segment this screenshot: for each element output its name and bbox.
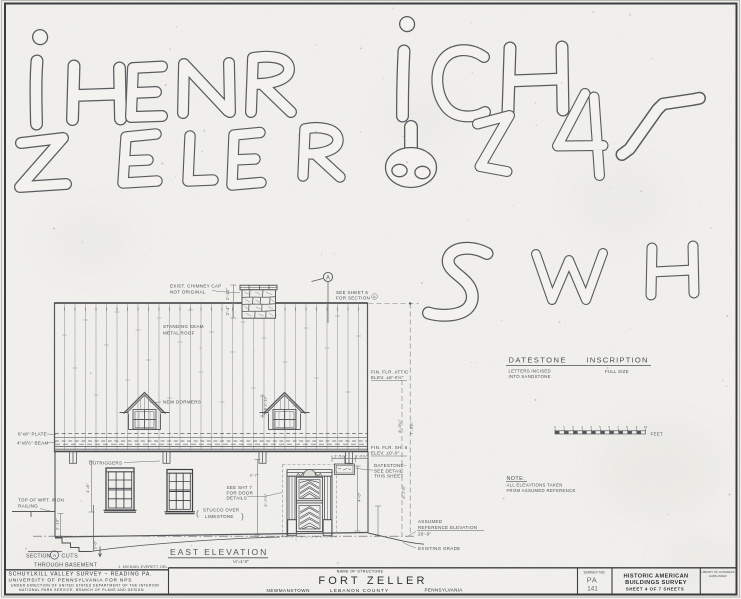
svg-text:STUCCO OVER: STUCCO OVER xyxy=(203,508,240,513)
svg-text:2'-5¼": 2'-5¼" xyxy=(334,455,347,459)
svg-text:8'-0¼": 8'-0¼" xyxy=(397,419,402,432)
svg-text:NAME OF STRUCTURE: NAME OF STRUCTURE xyxy=(337,569,384,573)
svg-text:BUILDINGS SURVEY: BUILDINGS SURVEY xyxy=(625,580,687,586)
svg-text:PENNSYLVANIA: PENNSYLVANIA xyxy=(425,588,464,593)
svg-text:J. MICHAEL EVERETT, DEL.: J. MICHAEL EVERETT, DEL. xyxy=(119,565,169,569)
svg-text:DATESTONE: DATESTONE xyxy=(509,356,567,365)
svg-text:0'-7": 0'-7" xyxy=(250,474,259,478)
svg-text:6'-7¾": 6'-7¾" xyxy=(263,493,268,506)
svg-text:REFERENCE ELEVATION: REFERENCE ELEVATION xyxy=(418,525,477,530)
svg-text:4"x6½" BEAM: 4"x6½" BEAM xyxy=(17,440,49,446)
svg-text:NEW DORMERS: NEW DORMERS xyxy=(163,400,201,405)
svg-text:CUTS: CUTS xyxy=(62,554,79,560)
svg-text:STANDING SEAM: STANDING SEAM xyxy=(163,324,204,329)
svg-text:TOP OF WRT. IRON: TOP OF WRT. IRON xyxy=(18,498,64,503)
svg-text:1'-10": 1'-10" xyxy=(225,288,230,300)
svg-text:FROM ASSUMED REFERENCE: FROM ASSUMED REFERENCE xyxy=(507,488,576,493)
svg-text:FORT ZELLER: FORT ZELLER xyxy=(318,575,427,587)
svg-text:HABS ANNEX: HABS ANNEX xyxy=(709,574,727,578)
svg-text:141: 141 xyxy=(587,586,598,593)
svg-text:7'-9⅝": 7'-9⅝" xyxy=(409,421,414,434)
svg-text:UNDER DIRECTION OF UNITED STAT: UNDER DIRECTION OF UNITED STATES DEPARTM… xyxy=(11,583,159,587)
svg-text:NEWMANSTOWN: NEWMANSTOWN xyxy=(267,588,310,593)
svg-text:¼"=1'-0": ¼"=1'-0" xyxy=(233,559,249,564)
svg-text:RAILING: RAILING xyxy=(18,504,38,509)
svg-text:SURVEY NO.: SURVEY NO. xyxy=(583,570,605,574)
svg-text:6"x8" PLATE: 6"x8" PLATE xyxy=(18,432,47,437)
svg-text:EAST ELEVATION: EAST ELEVATION xyxy=(170,547,268,557)
svg-text:LETTERS INCISED: LETTERS INCISED xyxy=(509,369,551,374)
svg-text:1'-0¾": 1'-0¾" xyxy=(355,455,368,459)
svg-text:ALL ELEVATIONS TAKEN: ALL ELEVATIONS TAKEN xyxy=(507,482,563,487)
svg-text:THIS SHEET: THIS SHEET xyxy=(374,474,404,479)
svg-text:FIN. FLR. SH. 6: FIN. FLR. SH. 6 xyxy=(371,445,408,450)
svg-text:LEBANON COUNTY: LEBANON COUNTY xyxy=(330,588,389,594)
svg-text:PA: PA xyxy=(587,576,598,585)
svg-text:DATESTONE–: DATESTONE– xyxy=(374,463,407,468)
svg-text:ASSUMED: ASSUMED xyxy=(418,519,443,524)
svg-text:NATIONAL PARK SERVICE, BRANCH: NATIONAL PARK SERVICE, BRANCH OF PLANS A… xyxy=(19,588,144,592)
svg-text:SECTION: SECTION xyxy=(26,554,51,560)
svg-text:DETAILS: DETAILS xyxy=(227,496,248,501)
svg-text:FULL SIZE: FULL SIZE xyxy=(605,369,629,374)
svg-text:NOTE:: NOTE: xyxy=(507,476,525,482)
svg-text:): ) xyxy=(241,511,244,521)
svg-text:6'-7¾": 6'-7¾" xyxy=(401,485,406,498)
svg-text:SEE DETAIL: SEE DETAIL xyxy=(374,468,403,473)
svg-text:10: 10 xyxy=(644,425,648,429)
svg-text:SCHUYLKILL VALLEY SURVEY ~: SCHUYLKILL VALLEY SURVEY ~ READING PA. xyxy=(9,572,153,578)
svg-text:SHEET 4 OF 7 SHEETS: SHEET 4 OF 7 SHEETS xyxy=(626,587,685,592)
svg-text:2'-4": 2'-4" xyxy=(225,305,230,315)
svg-text:4'-0": 4'-0" xyxy=(357,492,362,502)
svg-text:SEE SHT 7: SEE SHT 7 xyxy=(227,485,253,490)
svg-text:ELEV. ±0'-0": ELEV. ±0'-0" xyxy=(371,451,400,456)
svg-text:NOT ORIGINAL: NOT ORIGINAL xyxy=(170,290,206,295)
svg-text:ELEV. ±8'-0⅛": ELEV. ±8'-0⅛" xyxy=(371,375,404,380)
svg-text:5'-8 3'-10: 5'-8 3'-10 xyxy=(264,397,268,415)
svg-text:3'-0": 3'-0" xyxy=(94,540,98,549)
svg-text:FEET: FEET xyxy=(651,432,664,437)
svg-text:A: A xyxy=(373,295,376,299)
svg-text:FIN. FLR. ATTIC: FIN. FLR. ATTIC xyxy=(371,370,409,375)
svg-text:INSCRIPTION: INSCRIPTION xyxy=(587,356,649,365)
svg-text:2'-10": 2'-10" xyxy=(54,518,59,530)
svg-text:(: ( xyxy=(196,508,199,518)
svg-text:4'-8": 4'-8" xyxy=(85,483,90,493)
svg-text:FOR DOOR: FOR DOOR xyxy=(227,490,254,495)
svg-text:FOR SECTION: FOR SECTION xyxy=(336,296,370,301)
svg-text:THROUGH BASEMENT: THROUGH BASEMENT xyxy=(34,563,98,569)
svg-text:METAL ROOF: METAL ROOF xyxy=(163,331,195,336)
svg-text:INTO SANDSTONE: INTO SANDSTONE xyxy=(509,374,551,379)
svg-text:HISTORIC AMERICAN: HISTORIC AMERICAN xyxy=(623,574,688,580)
svg-text:EXIST. CHIMNEY CAP: EXIST. CHIMNEY CAP xyxy=(170,284,222,289)
svg-text:SEE SHEET 6: SEE SHEET 6 xyxy=(336,290,368,295)
svg-text:EXISTING GRADE: EXISTING GRADE xyxy=(418,546,460,551)
svg-text:LIMESTONE: LIMESTONE xyxy=(205,514,234,519)
svg-text:20'-0": 20'-0" xyxy=(418,532,431,537)
svg-text:A: A xyxy=(326,276,330,282)
